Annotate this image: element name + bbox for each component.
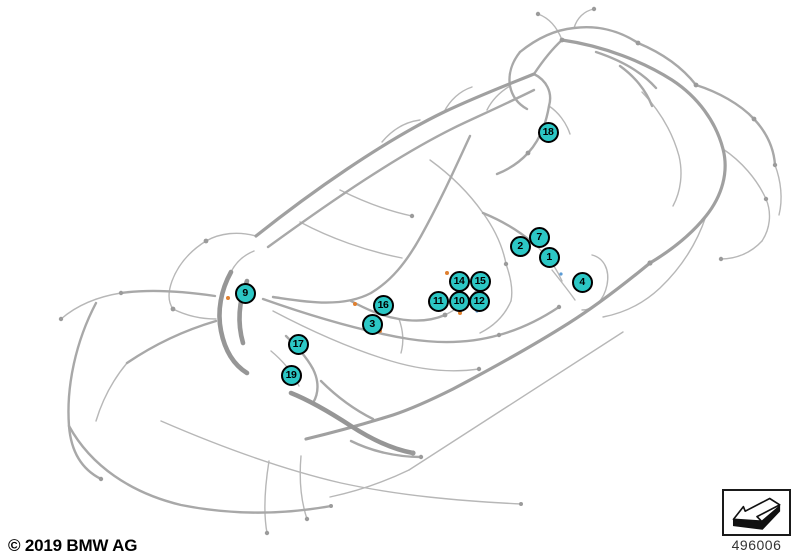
thumbnail-box[interactable] <box>722 489 791 536</box>
copyright: © 2019 BMW AG <box>8 536 137 556</box>
diagram-number: 496006 <box>722 537 791 553</box>
thumbnail-nav[interactable]: 496006 <box>722 489 791 553</box>
callout-16[interactable]: 16 <box>373 295 394 316</box>
callout-7[interactable]: 7 <box>529 227 550 248</box>
callout-15[interactable]: 15 <box>470 271 491 292</box>
callout-2[interactable]: 2 <box>510 236 531 257</box>
callout-9[interactable]: 9 <box>235 283 256 304</box>
callout-1[interactable]: 1 <box>539 247 560 268</box>
callout-18[interactable]: 18 <box>538 122 559 143</box>
callout-3[interactable]: 3 <box>362 314 383 335</box>
callout-11[interactable]: 11 <box>428 291 449 312</box>
callout-19[interactable]: 19 <box>281 365 302 386</box>
callout-17[interactable]: 17 <box>288 334 309 355</box>
callout-4[interactable]: 4 <box>572 272 593 293</box>
callout-12[interactable]: 12 <box>469 291 490 312</box>
callout-14[interactable]: 14 <box>449 271 470 292</box>
callout-10[interactable]: 10 <box>449 291 470 312</box>
arrow-3d-left-icon <box>728 493 786 533</box>
callout-layer: 123479101112141516171819 <box>0 0 800 560</box>
diagram-canvas: 123479101112141516171819 © 2019 BMW AG 4… <box>0 0 800 560</box>
